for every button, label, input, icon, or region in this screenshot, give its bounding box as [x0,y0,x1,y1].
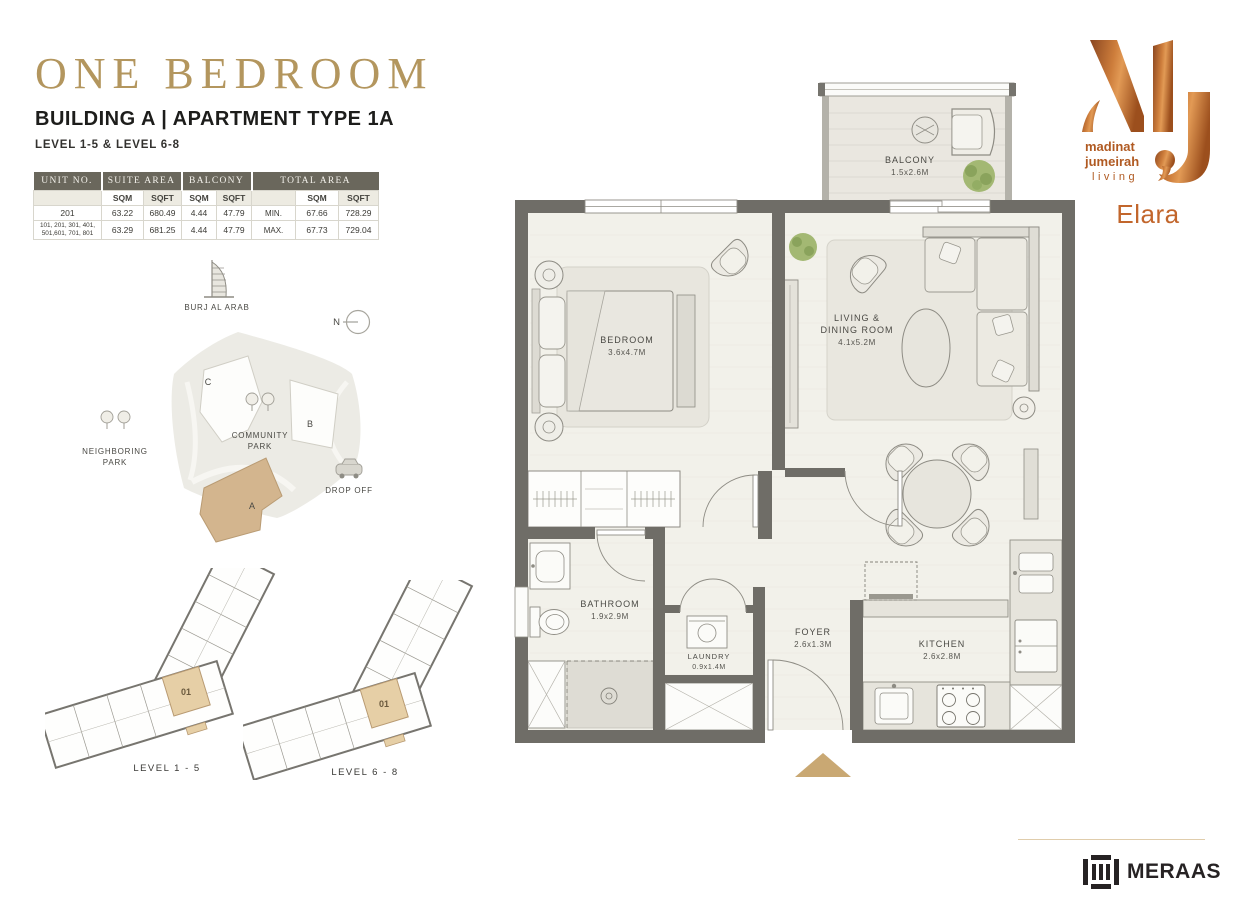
coffee-table-icon [902,309,950,387]
wardrobe-icon [528,471,680,527]
entry-threshold [765,730,852,743]
plant-icon [789,233,817,261]
building-a-label: A [249,501,255,511]
community-park-label: COMMUNITY [232,431,289,440]
kitchen-label: KITCHEN [919,639,966,649]
living-dims: 4.1x5.2M [838,338,876,347]
col-header-unit-no: UNIT NO. [34,172,102,191]
page-title: ONE BEDROOM [35,52,433,96]
mj-wordmark-line2: jumeirah [1084,154,1139,169]
bedroom-label: BEDROOM [600,335,654,345]
shower-icon [567,661,653,728]
balcony-sqm-cell: 4.44 [182,206,217,221]
mj-logo: madinat jumeirah living Elara [1078,38,1218,230]
bedroom-dims: 3.6x4.7M [608,348,646,357]
level-range: LEVEL 1-5 & LEVEL 6-8 [35,139,433,151]
elara-project-name: Elara [1078,199,1218,230]
mj-wordmark-line1: madinat [1085,139,1136,154]
north-compass-icon: N [333,311,369,334]
total-sqft-cell: 729.04 [339,221,379,240]
tree-icon [118,411,130,429]
total-sqm-cell: 67.66 [296,206,339,221]
building-subtitle: BUILDING A | APARTMENT TYPE 1A [35,108,433,131]
unit-no-cell: 201 [34,206,102,221]
subheader-sqft: SQFT [144,191,182,206]
suite-sqft-cell: 680.49 [144,206,182,221]
meraas-icon [1083,855,1119,889]
balcony-label: BALCONY [885,155,935,165]
meraas-logo: MERAAS [1083,855,1221,889]
table-row: 101, 201, 301, 401, 501,601, 701, 801 63… [34,221,379,240]
subheader-sqm: SQM [296,191,339,206]
kitchen-dims: 2.6x2.8M [923,652,961,661]
neighboring-park-label: NEIGHBORING [82,447,148,456]
key-plan-level-label: LEVEL 6 - 8 [331,767,398,778]
laundry-label: LAUNDRY [688,652,731,661]
suite-sqm-cell: 63.22 [102,206,144,221]
subheader-sqm: SQM [102,191,144,206]
floor-plan: BALCONY 1.5x2.6M [505,75,1085,785]
total-sqft-cell: 728.29 [339,206,379,221]
subheader-blank [34,191,102,206]
balcony-chair-icon [952,109,995,155]
kitchen-counter-icon [863,600,1008,617]
neighboring-park-label-2: PARK [103,458,127,467]
balcony-sliding-door [890,200,990,213]
subheader-sqft: SQFT [217,191,252,206]
subheader-sqft: SQFT [339,191,379,206]
balcony-sqft-cell: 47.79 [217,206,252,221]
plant-icon [963,160,995,192]
floor-lamp-icon [1013,397,1035,419]
range-label-cell: MIN. [252,206,296,221]
balcony-dims: 1.5x2.6M [891,168,929,177]
range-label-cell: MAX. [252,221,296,240]
subheader-sqm: SQM [182,191,217,206]
side-cabinet-icon [1024,449,1038,519]
entrance-arrow-icon [795,753,851,777]
linen-closet-icon [528,661,565,728]
balcony-sqm-cell: 4.44 [182,221,217,240]
col-header-total-area: TOTAL AREA [252,172,379,191]
mj-wordmark-line3: living [1092,171,1138,183]
sink-icon [875,684,913,724]
site-map: BURJ AL ARAB N COMMUNITY PARK NEIGHBORIN… [52,252,432,557]
balcony-sqft-cell: 47.79 [217,221,252,240]
col-header-suite-area: SUITE AREA [102,172,182,191]
table-row: 201 63.22 680.49 4.44 47.79 MIN. 67.66 7… [34,206,379,221]
community-park-label-2: PARK [248,442,272,451]
subheader-blank [252,191,296,206]
north-label: N [333,317,341,328]
tv-screen-icon [869,594,913,599]
building-b-label: B [307,419,313,429]
burj-al-arab-label: BURJ AL ARAB [184,303,249,312]
foyer-dims: 2.6x1.3M [794,640,832,649]
footer-divider [1018,839,1205,840]
unit-no-cell: 101, 201, 301, 401, 501,601, 701, 801 [34,221,102,240]
shaft-icon [665,683,753,730]
drop-off-label: DROP OFF [325,486,373,495]
building-c-label: C [205,377,212,387]
key-plan-unit-label: 01 [379,699,389,709]
fridge-icon [1015,620,1057,672]
washer-icon [687,616,727,648]
total-sqm-cell: 67.73 [296,221,339,240]
tree-icon [101,411,113,429]
burj-al-arab-icon [204,260,234,297]
area-table: UNIT NO. SUITE AREA BALCONY TOTAL AREA S… [33,172,379,240]
suite-sqft-cell: 681.25 [144,221,182,240]
bedroom-window [585,200,737,213]
key-plan-level-6-8: 01 LEVEL 6 - 8 [243,580,483,780]
bathroom-label: BATHROOM [580,599,639,609]
shaft-icon [1010,685,1062,730]
living-label-2: DINING ROOM [821,325,894,335]
col-header-balcony: BALCONY [182,172,252,191]
wall-niche [515,587,528,637]
suite-sqm-cell: 63.29 [102,221,144,240]
balcony-area: BALCONY 1.5x2.6M [818,83,1016,205]
sink-vanity-icon [530,543,570,589]
stove-icon [937,685,985,727]
laundry-dims: 0.9x1.4M [692,664,726,671]
brochure-page: ONE BEDROOM BUILDING A | APARTMENT TYPE … [0,0,1250,900]
bathroom-dims: 1.9x2.9M [591,612,629,621]
meraas-wordmark: MERAAS [1127,860,1221,884]
key-plan-level-label: LEVEL 1 - 5 [133,763,200,774]
mj-monogram-icon: madinat jumeirah living [1078,38,1218,188]
foyer-label: FOYER [795,627,831,637]
living-label-1: LIVING & [834,313,880,323]
key-plan-unit-label: 01 [181,687,191,697]
